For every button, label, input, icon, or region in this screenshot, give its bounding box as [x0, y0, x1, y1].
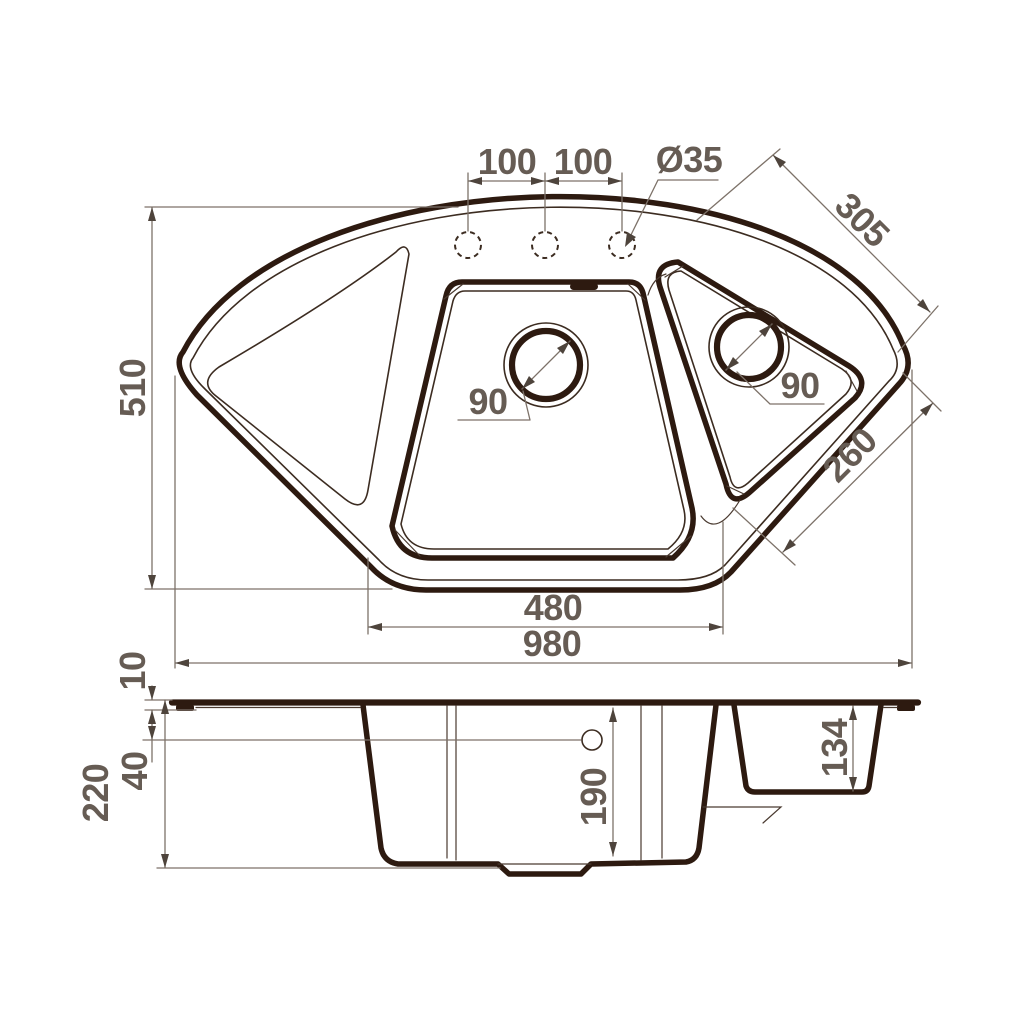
technical-drawing-page: 100 100 Ø35 510 305 260	[0, 0, 1024, 1024]
dim-label-rim-height: 10	[112, 651, 153, 690]
dim-label-edge-right-top: 305	[827, 184, 898, 255]
dim-hole-spacing: 100 100	[468, 141, 622, 231]
dim-label-hole-spacing-left: 100	[478, 141, 537, 182]
dim-label-bottom-width: 480	[524, 587, 583, 628]
faucet-hole-2	[532, 232, 558, 258]
dim-label-main-bowl-depth: 190	[573, 768, 614, 827]
dim-right-bowl-depth: 134	[814, 706, 857, 791]
section-right-bowl	[734, 705, 881, 792]
dim-label-main-drain: 90	[468, 381, 507, 422]
dim-overall-depth: 510	[112, 207, 458, 589]
dim-label-edge-right-bottom: 260	[814, 419, 884, 489]
section-main-bowl	[363, 705, 716, 874]
dim-overall-width: 980	[175, 370, 912, 668]
dim-label-overflow-offset: 40	[114, 751, 155, 790]
dim-label-hole-diameter: Ø35	[656, 139, 723, 180]
dim-label-overall-height: 220	[75, 764, 116, 823]
section-overflow-hole	[582, 730, 602, 750]
dim-label-right-bowl-depth: 134	[814, 718, 855, 777]
section-right-bowl-undercontour	[703, 807, 781, 823]
dim-label-overall-width: 980	[523, 623, 582, 664]
sink-drawing-canvas: 100 100 Ø35 510 305 260	[0, 0, 1024, 1024]
dim-hole-diameter: Ø35	[625, 139, 723, 247]
top-view: 100 100 Ø35 510 305 260	[112, 139, 941, 668]
section-view: 10 40 220 190 134	[75, 651, 918, 874]
dim-label-right-drain: 90	[780, 365, 819, 406]
section-main-bowl-creases	[447, 706, 662, 860]
section-rim-right-lip	[897, 705, 915, 711]
dim-label-overall-depth: 510	[112, 359, 153, 418]
faucet-hole-1	[455, 232, 481, 258]
overflow-slot	[570, 283, 598, 290]
dim-label-hole-spacing-right: 100	[554, 141, 613, 182]
dim-bottom-width: 480	[368, 522, 723, 634]
dim-overflow-offset: 40	[114, 710, 581, 791]
